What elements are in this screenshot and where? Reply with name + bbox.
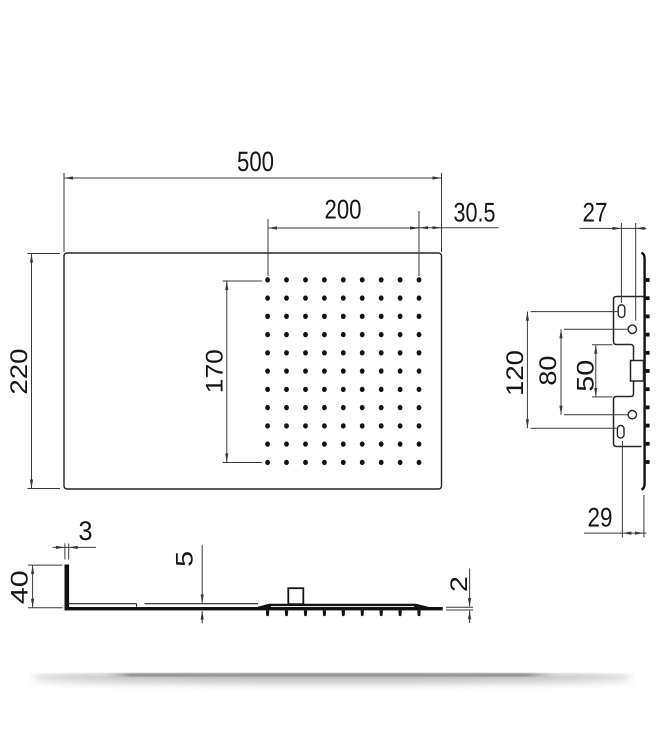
svg-text:220: 220 bbox=[6, 349, 33, 395]
svg-text:50: 50 bbox=[573, 360, 600, 392]
svg-text:5: 5 bbox=[172, 551, 199, 567]
svg-text:29: 29 bbox=[588, 503, 613, 533]
svg-text:27: 27 bbox=[583, 198, 608, 228]
svg-text:2: 2 bbox=[446, 576, 473, 592]
svg-text:170: 170 bbox=[201, 349, 228, 393]
svg-text:200: 200 bbox=[325, 195, 362, 225]
svg-text:3: 3 bbox=[79, 516, 93, 546]
svg-text:40: 40 bbox=[7, 570, 34, 604]
svg-text:30.5: 30.5 bbox=[454, 198, 496, 228]
svg-text:80: 80 bbox=[535, 356, 562, 386]
svg-text:500: 500 bbox=[237, 146, 274, 177]
svg-text:120: 120 bbox=[502, 350, 529, 396]
